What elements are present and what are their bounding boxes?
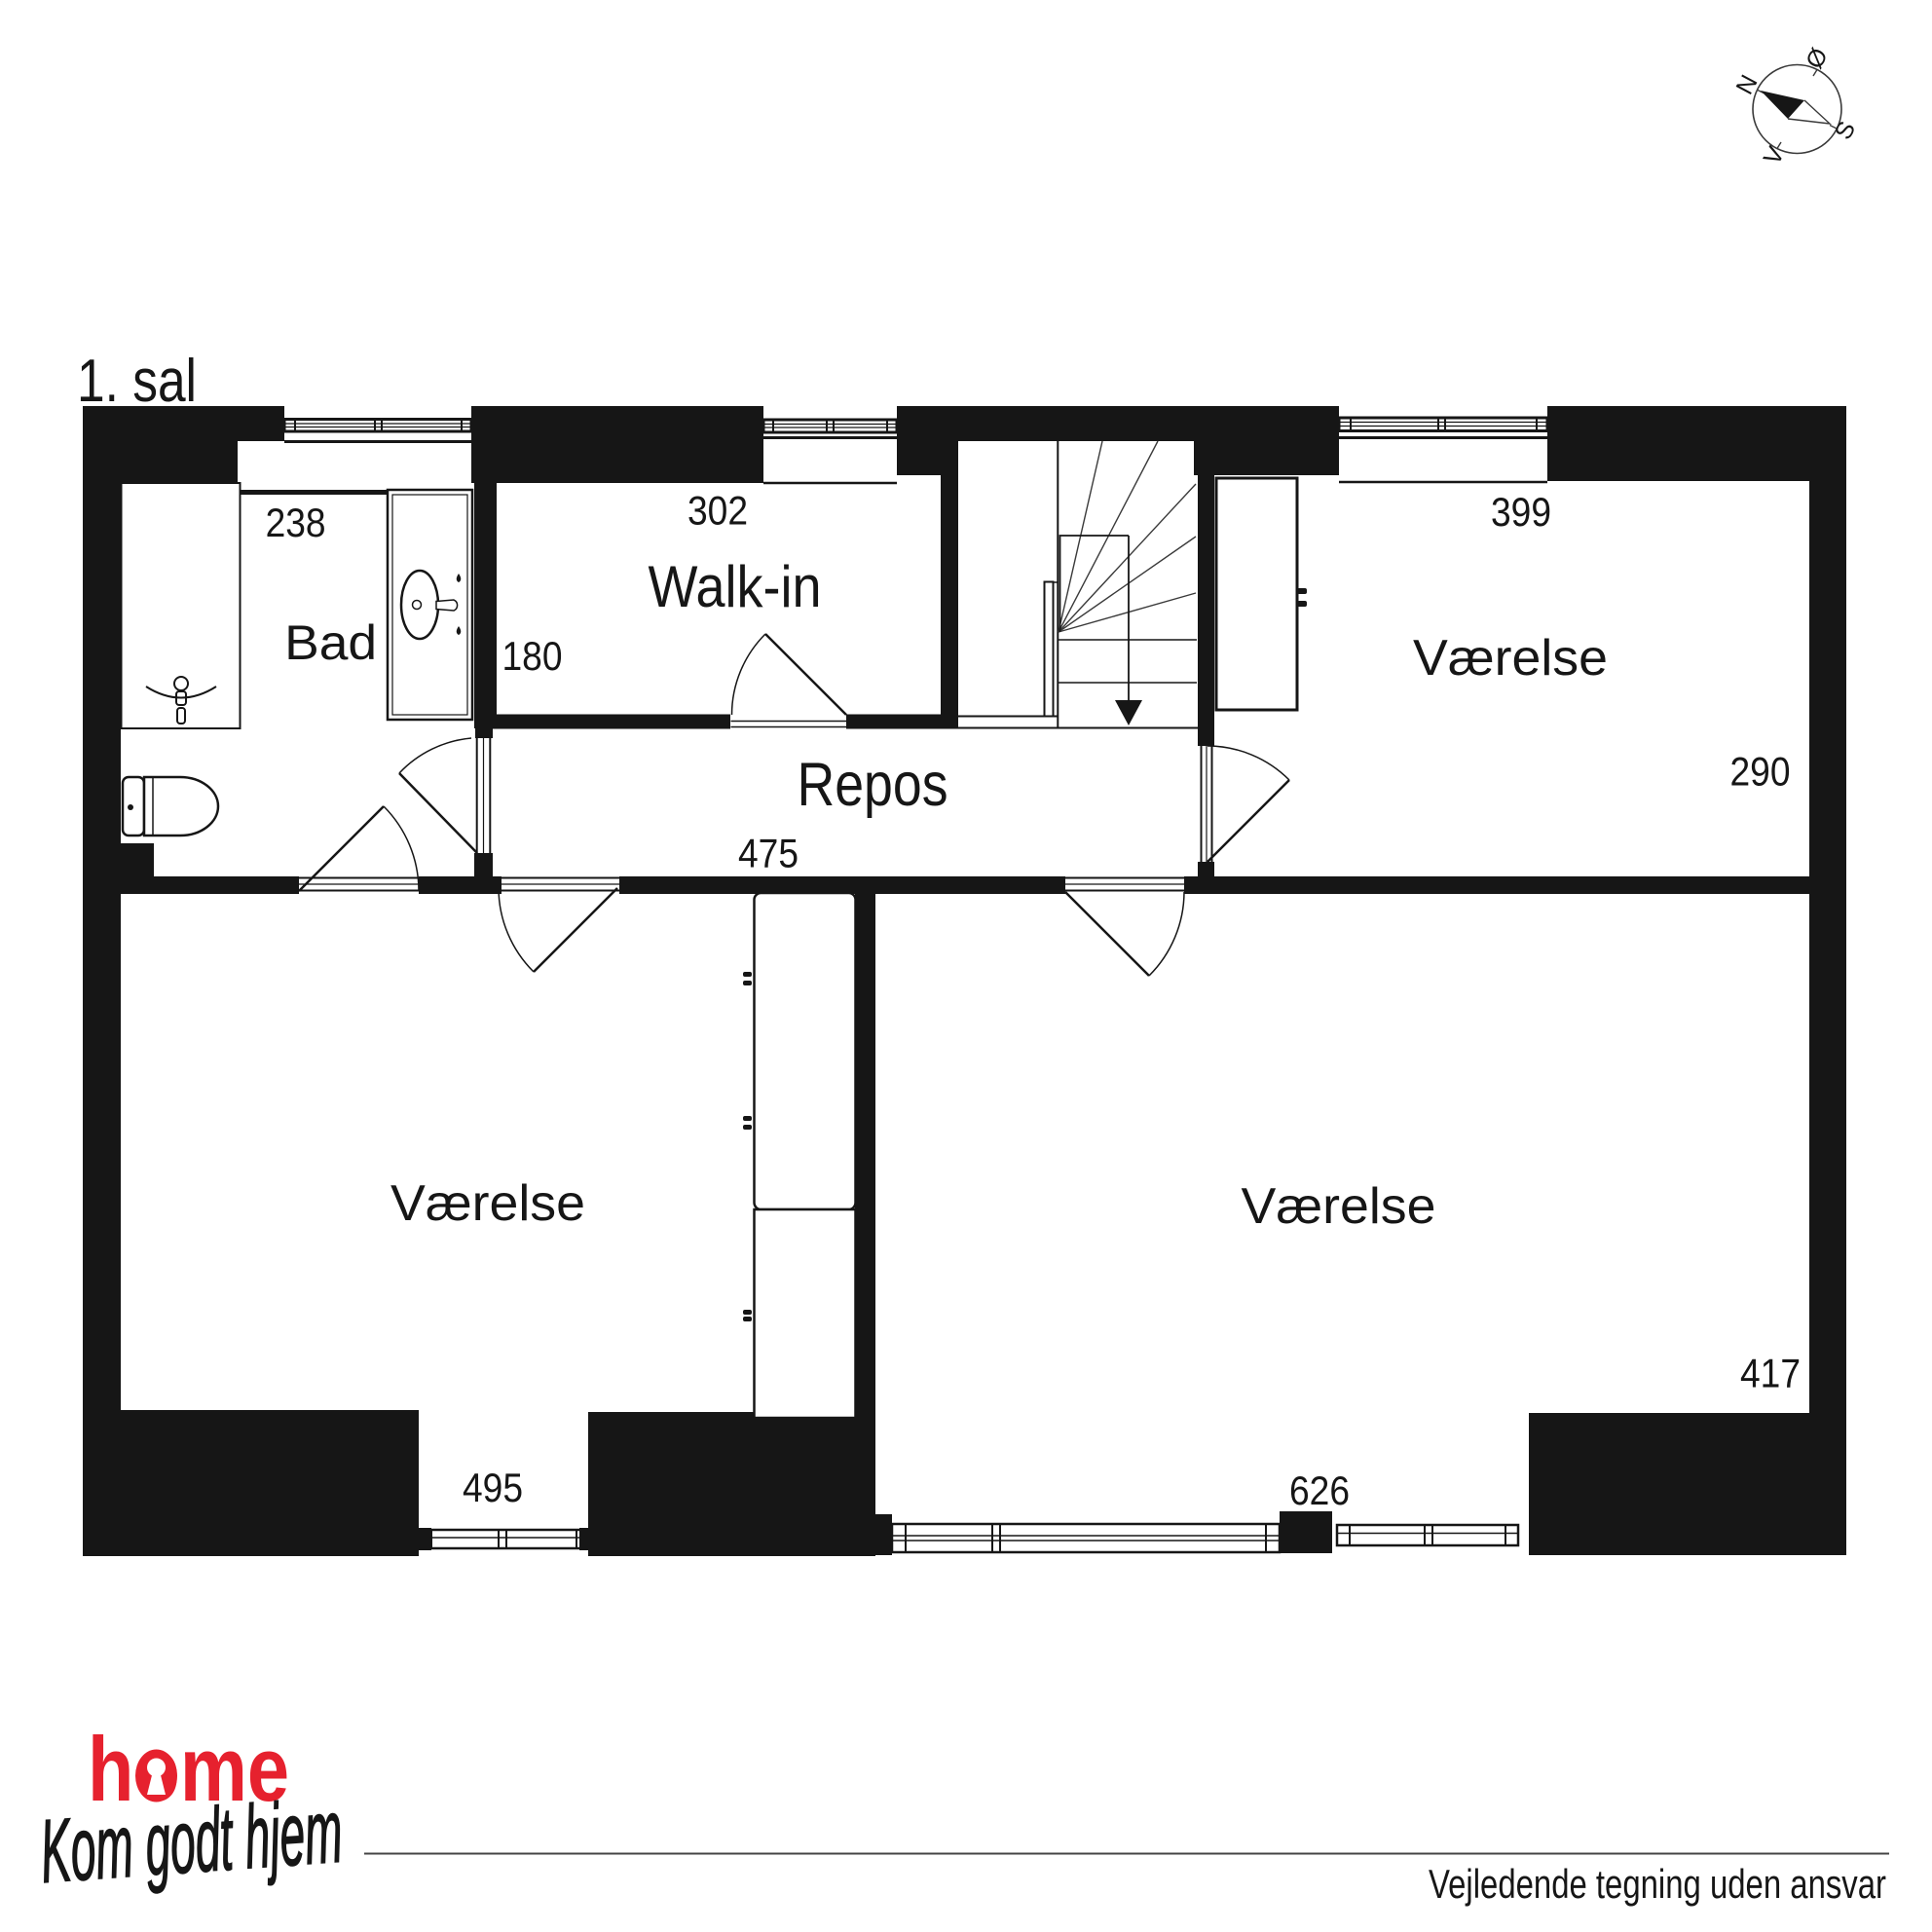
svg-text:626: 626 — [1289, 1468, 1350, 1513]
svg-text:Værelse: Værelse — [1242, 1178, 1436, 1235]
svg-text:417: 417 — [1740, 1351, 1801, 1396]
svg-text:Repos: Repos — [798, 751, 948, 819]
svg-text:Vejledende tegning uden ansvar: Vejledende tegning uden ansvar — [1429, 1861, 1886, 1907]
svg-text:Værelse: Værelse — [1413, 630, 1608, 687]
svg-text:399: 399 — [1491, 489, 1551, 535]
svg-text:495: 495 — [463, 1465, 523, 1510]
svg-text:475: 475 — [738, 831, 799, 876]
svg-text:1. sal: 1. sal — [77, 348, 197, 415]
svg-text:180: 180 — [502, 633, 563, 679]
svg-text:Walk-in: Walk-in — [649, 554, 822, 619]
svg-text:302: 302 — [687, 488, 748, 534]
svg-text:Værelse: Værelse — [390, 1175, 585, 1232]
svg-text:238: 238 — [266, 500, 326, 545]
svg-text:Bad: Bad — [284, 615, 377, 670]
svg-text:290: 290 — [1730, 749, 1791, 795]
svg-text:Kom godt hjem: Kom godt hjem — [37, 1782, 345, 1902]
